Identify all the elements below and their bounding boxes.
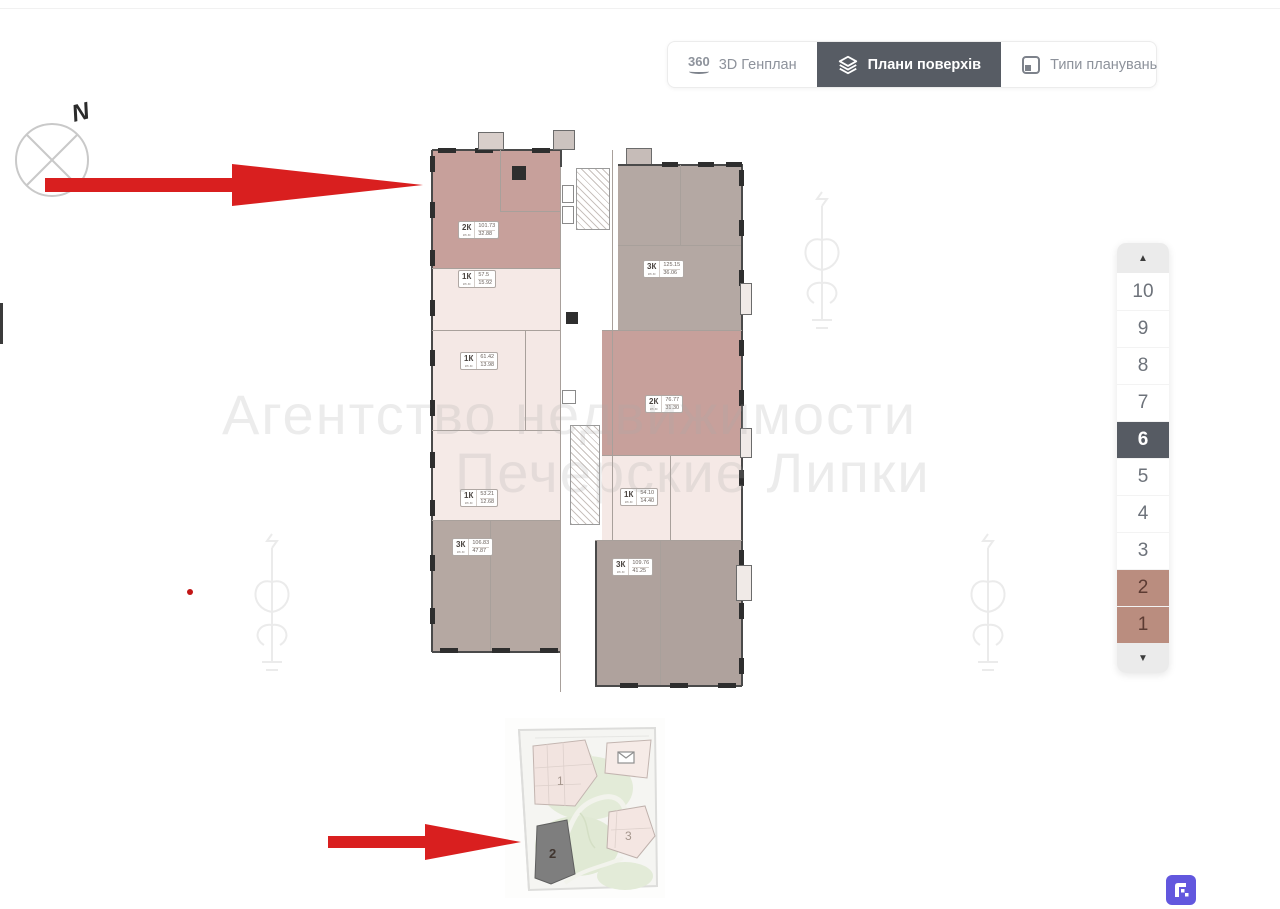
apartment-2k-topleft[interactable]	[432, 150, 560, 268]
floor-cell-4[interactable]: 4	[1117, 495, 1169, 532]
annotation-red-dot	[187, 589, 193, 595]
balcony-right-2	[740, 428, 752, 458]
apartment-1k-left-b[interactable]	[432, 330, 560, 430]
elevator-2	[562, 206, 574, 224]
layers-icon	[837, 54, 859, 76]
apartment-label: 3Ккв.м 109.7641.25	[612, 558, 653, 576]
shaft-protrusion-top	[553, 130, 575, 150]
brand-logo-icon	[1166, 875, 1196, 905]
elevator-3	[562, 390, 576, 404]
stairwell-upper	[576, 168, 610, 230]
svg-text:3: 3	[625, 829, 632, 843]
floor-cell-1[interactable]: 1	[1117, 606, 1169, 643]
floor-cell-7[interactable]: 7	[1117, 384, 1169, 421]
apartment-label: 3Ккв.м 106.8347.87	[452, 538, 493, 556]
apartment-label: 1Ккв.м 57.515.92	[458, 270, 496, 288]
svg-text:2: 2	[549, 846, 556, 861]
apartment-label: 1Ккв.м 53.2112.68	[460, 489, 498, 507]
tab-floor-plans[interactable]: Плани поверхів	[817, 42, 1001, 87]
floor-up-button[interactable]: ▲	[1117, 243, 1169, 273]
floor-cell-2[interactable]: 2	[1117, 569, 1169, 606]
tab-layout-types-label: Типи планувань	[1050, 57, 1157, 73]
roof-protrusion-top	[478, 132, 504, 150]
annotation-arrow-floorplan	[45, 158, 425, 212]
floor-cell-8[interactable]: 8	[1117, 347, 1169, 384]
stairwell-lower	[570, 425, 600, 525]
balcony-right-3	[736, 565, 752, 601]
360-icon: 360	[688, 55, 710, 74]
siteplan-building-amenity[interactable]	[605, 740, 651, 778]
ornament-top-right	[792, 188, 852, 336]
apartment-label: 2Ккв.м 101.7332.88	[458, 221, 499, 239]
floor-cell-3[interactable]: 3	[1117, 532, 1169, 569]
floor-cell-9[interactable]: 9	[1117, 310, 1169, 347]
floor-selector: ▲ 10 9 8 7 6 5 4 3 2 1 ▼	[1117, 243, 1169, 673]
floor-cell-5[interactable]: 5	[1117, 458, 1169, 495]
left-edge-mark	[0, 303, 3, 344]
amenity-icon	[618, 752, 634, 763]
apartment-label: 1Ккв.м 54.1014.40	[620, 488, 658, 506]
apartment-2k-right[interactable]	[602, 330, 742, 455]
floor-cell-10[interactable]: 10	[1117, 273, 1169, 310]
apartment-label: 1Ккв.м 61.4213.98	[460, 352, 498, 370]
floor-down-button[interactable]: ▼	[1117, 643, 1169, 673]
brand-logo[interactable]	[1166, 875, 1196, 905]
tab-floor-plans-label: Плани поверхів	[868, 57, 981, 73]
compass-north-label: N	[69, 98, 93, 128]
svg-text:1: 1	[557, 774, 564, 788]
apartment-label: 2Ккв.м 76.7731.30	[645, 395, 683, 413]
site-plan: 1 3 2	[505, 718, 665, 898]
ornament-bottom-left	[242, 530, 302, 678]
top-divider	[0, 8, 1280, 9]
apartment-label: 3Ккв.м 125.1536.06	[643, 260, 684, 278]
tab-3d-genplan-label: 3D Генплан	[719, 57, 797, 73]
tab-layout-types[interactable]: Типи планувань	[1001, 42, 1177, 87]
floor-cell-6-selected[interactable]: 6	[1117, 421, 1169, 458]
annotation-arrow-siteplan	[328, 820, 524, 864]
elevator-1	[562, 185, 574, 203]
view-tabs: 360 3D Генплан Плани поверхів Типи плану…	[667, 41, 1157, 88]
ornament-bottom-right	[958, 530, 1018, 678]
layout-type-icon	[1021, 55, 1041, 75]
balcony-right-1	[740, 283, 752, 315]
tab-3d-genplan[interactable]: 360 3D Генплан	[668, 42, 817, 87]
floor-plan: 2Ккв.м 101.7332.88 1Ккв.м 57.515.92 1Ккв…	[430, 140, 746, 692]
